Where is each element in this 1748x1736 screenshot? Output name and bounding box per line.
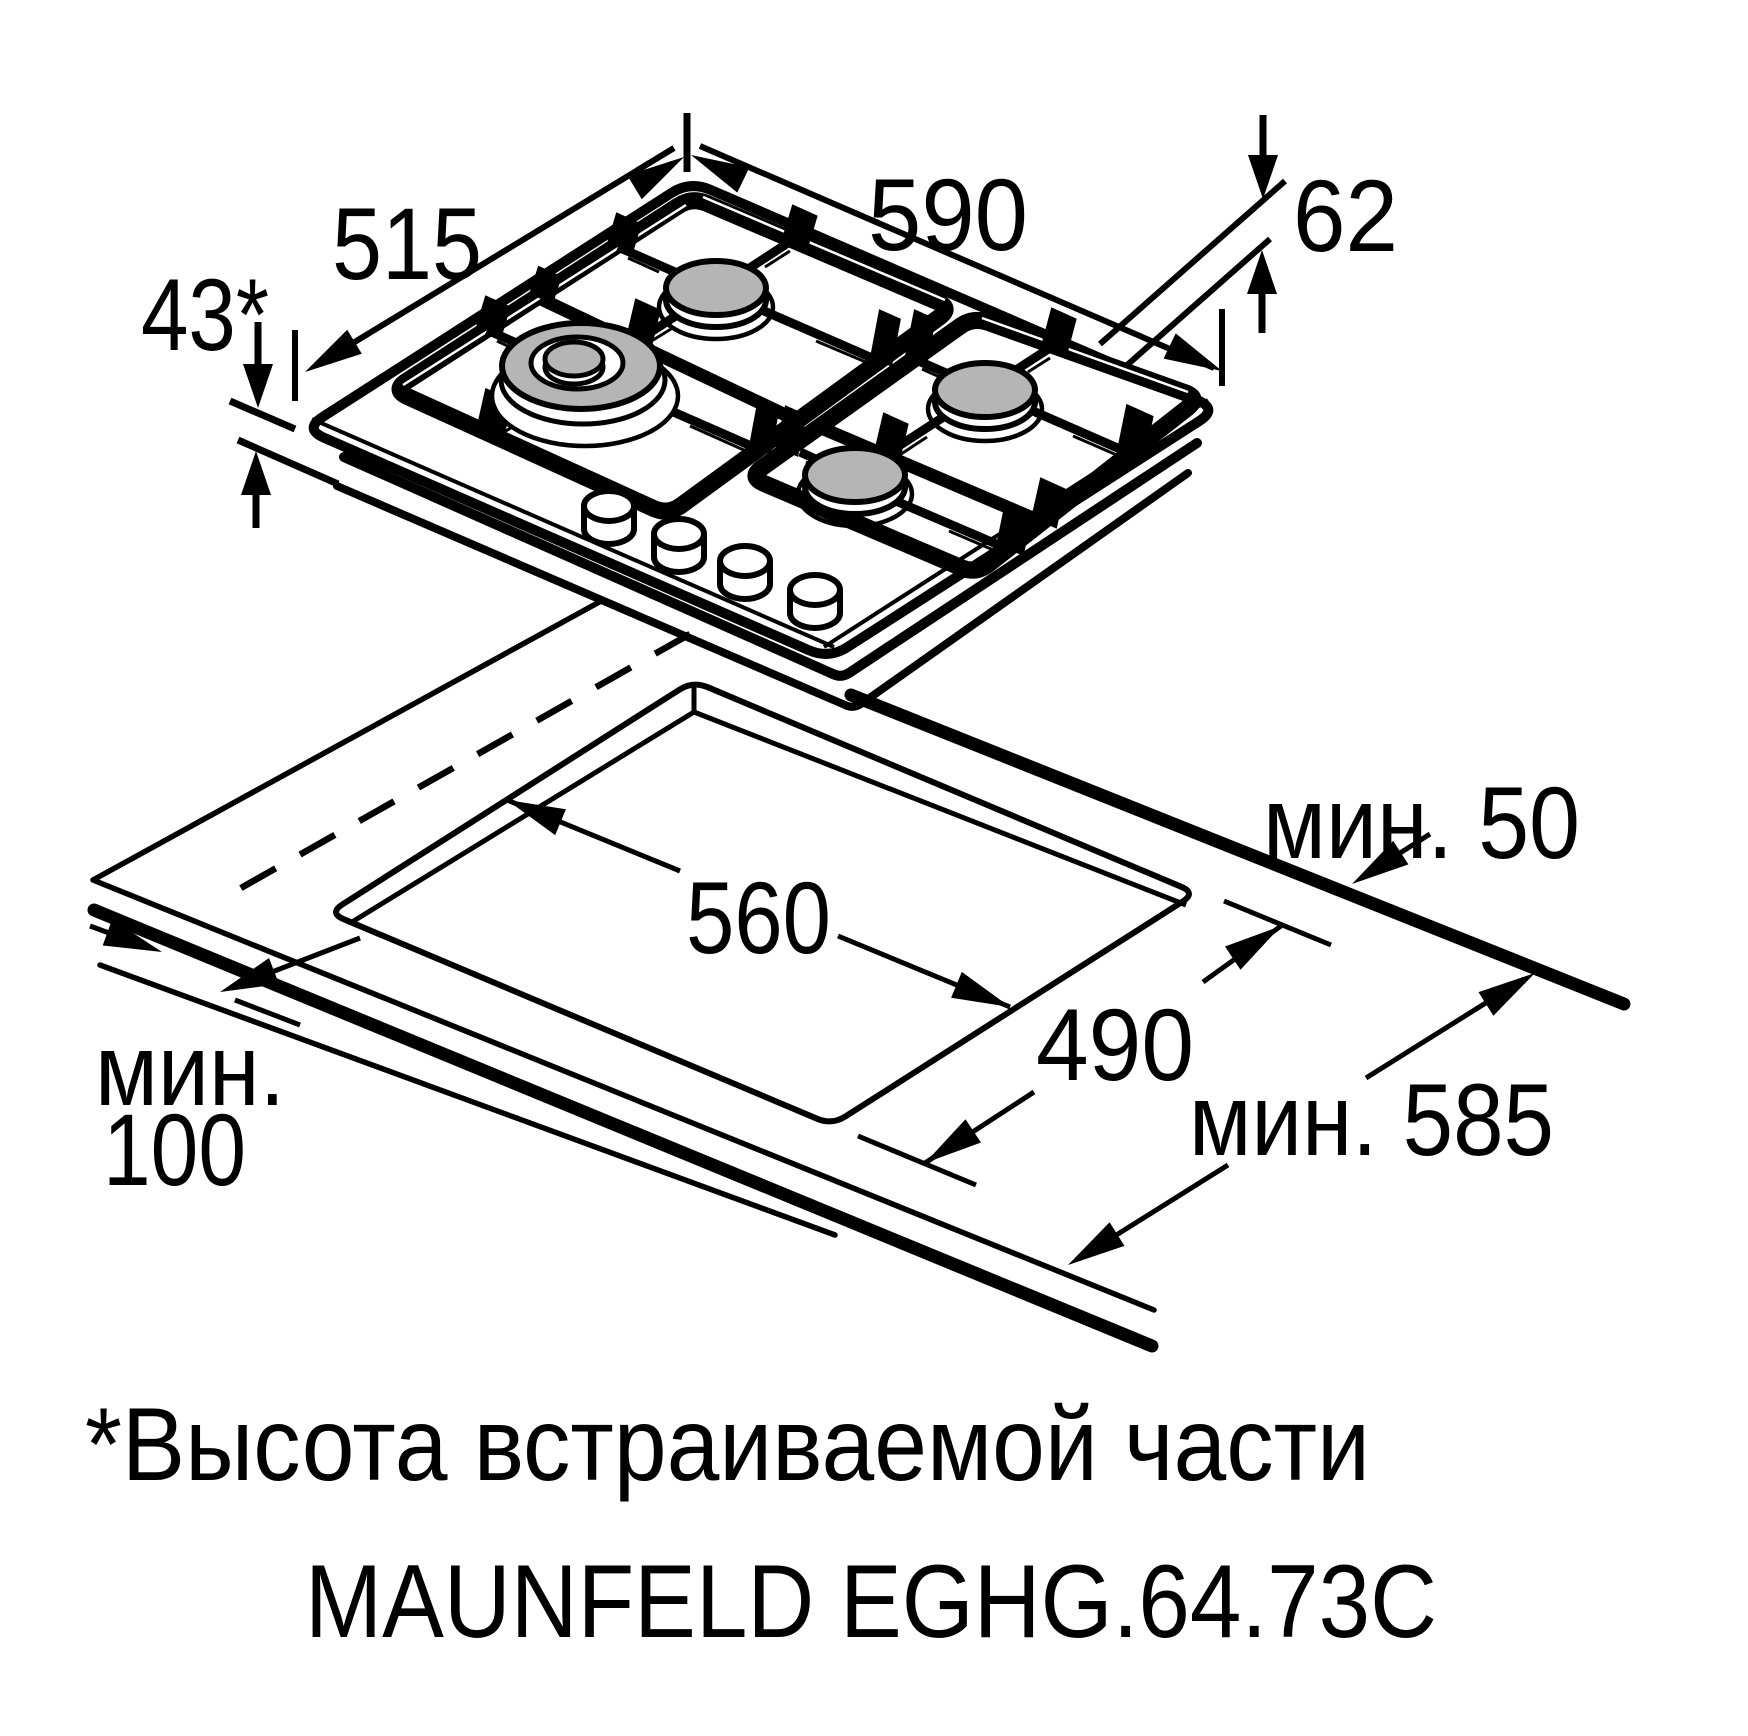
svg-text:мин. 585: мин. 585 [1189,1063,1554,1177]
svg-text:мин. 50: мин. 50 [1263,766,1580,880]
svg-text:490: 490 [1036,988,1194,1102]
svg-text:100: 100 [103,1093,246,1207]
svg-text:515: 515 [332,187,482,301]
svg-text:*Высота встраиваемой части: *Высота встраиваемой части [85,1387,1370,1503]
svg-text:560: 560 [686,861,831,975]
svg-text:62: 62 [1293,159,1398,273]
svg-text:MAUNFELD EGHG.64.73C: MAUNFELD EGHG.64.73C [305,1544,1437,1660]
svg-text:43*: 43* [141,258,269,372]
svg-text:590: 590 [868,158,1028,272]
